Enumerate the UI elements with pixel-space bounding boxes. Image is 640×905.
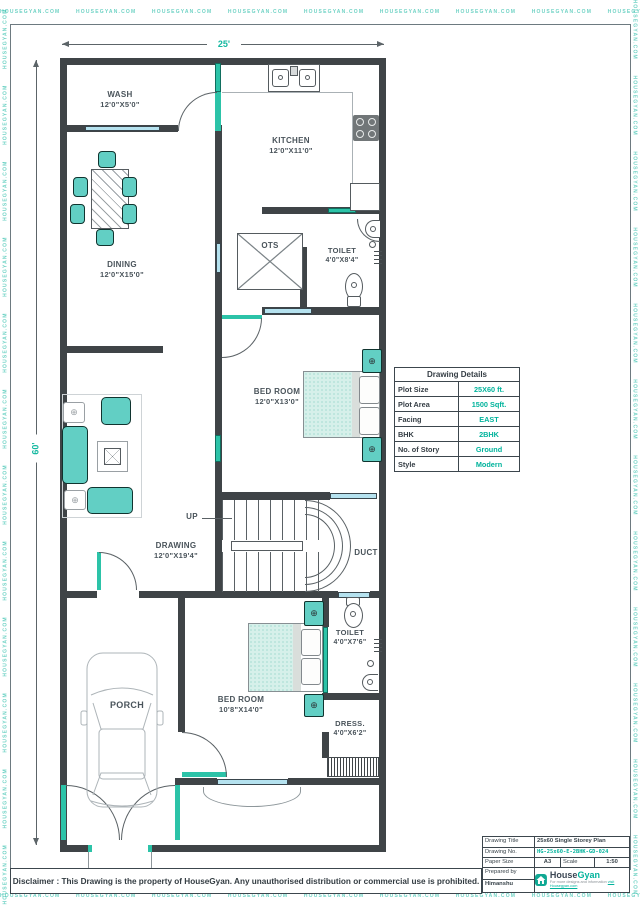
details-label: Plot Area [395,397,459,411]
dimension-arrow-down [33,838,39,845]
bed-2-blanket [249,624,295,691]
gate-stub-left [88,845,92,852]
up-direction-line [202,518,232,519]
room-size: 12'0"X15'0" [100,270,144,280]
floor-plan-sheet: HOUSEGYAN.COM HOUSEGYAN.COM HOUSEGYAN.CO… [0,0,640,905]
wall-corridor-vertical [215,125,222,598]
room-size: 4'0"X8'4" [326,256,359,265]
title-block-cell: Scale [561,858,595,868]
drawing-title-value: 25x60 Single Storey Plan [535,837,629,848]
nightstand-cross-icon: ⊕ [310,700,318,711]
dining-chair [73,177,88,197]
room-size: 10'8"X14'0" [218,705,264,715]
details-label: Plot Size [395,382,459,396]
stove-burner [368,118,376,126]
details-title: Drawing Details [395,368,519,382]
room-label-drawing: DRAWING 12'0"X19'4" [154,541,198,561]
bed-2 [248,623,323,692]
toilet2-basin-drain [367,679,373,685]
dimension-arrow-right [377,41,384,47]
room-label-toilet2: TOILET 4'0"X7'6" [334,628,367,647]
dining-chair [70,204,85,224]
details-label: Facing [395,412,459,426]
sofa-double [87,487,133,514]
room-label-porch: PORCH [110,700,144,712]
room-size: 12'0"X5'0" [100,100,140,110]
window-wash-kitchen [215,63,221,92]
details-row: Style Modern [395,457,519,471]
up-text: UP [186,512,198,521]
car-outline [80,645,164,817]
sink-drain-left [278,75,283,80]
wall-drawing-south-c [370,591,386,598]
room-label-dress: DRESS. 4'0"X6'2" [334,719,367,738]
wall-drawing-south-b [139,591,338,598]
bed-1-pillow [359,376,380,404]
prepared-by-value: Himanshu [483,880,535,892]
room-size: 4'0"X6'2" [334,729,367,738]
dining-chair [96,229,114,246]
room-label-bedroom1: BED ROOM 12'0"X13'0" [254,387,300,407]
room-label-wash: WASH 12'0"X5'0" [100,90,140,110]
title-block-cell: Drawing Title [483,837,535,848]
title-block-cell: Paper Size [483,858,535,868]
nightstand-cross-icon: ⊕ [310,608,318,619]
room-size: 12'0"X11'0" [269,146,313,156]
drawing-details-table: Drawing Details Plot Size 25X60 ft. Plot… [394,367,520,472]
window-corridor [216,243,221,273]
room-label-dining: DINING 12'0"X15'0" [100,260,144,280]
dining-chair [98,151,116,168]
dining-chair [122,204,137,224]
room-size: 12'0"X19'4" [154,551,198,561]
housegyan-logo-icon [535,873,547,887]
nightstand: ⊕ [362,349,382,373]
drawing-no-value: HG-25x60-E-2BHK-GD-024 [535,848,629,858]
window-wash [85,126,160,131]
wall-outer-top [60,58,386,65]
details-row: Plot Size 25X60 ft. [395,382,519,397]
details-row: BHK 2BHK [395,427,519,442]
title-block-cell: Drawing No. [483,848,535,858]
room-label-ots: OTS [258,241,281,251]
sofa-long [62,426,88,484]
label-duct: DUCT [354,548,377,558]
toilet2-wc-button [350,611,356,617]
sink-faucet [290,66,298,76]
stair-landing-rail [231,541,303,551]
room-size: 4'0"X7'6" [334,638,367,647]
disclaimer-bar: Disclaimer : This Drawing is the propert… [10,868,482,894]
wall-compound-left [60,845,88,852]
details-row: No. of Story Ground [395,442,519,457]
toilet2-floor-drain [367,660,374,667]
room-label-bedroom2: BED ROOM 10'8"X14'0" [218,695,264,715]
gate-leaf-right [175,785,180,840]
nightstand: ⊕ [304,601,324,626]
room-name: TOILET [336,628,364,637]
wall-porch-east [178,598,185,732]
counter-edge-top [222,92,352,93]
gate-stub-right [148,845,152,852]
stove [353,115,379,141]
room-name: OTS [261,241,278,250]
toilet1-wc-button [351,282,357,288]
wall-compound-right [152,845,386,852]
dimension-arrow-up [33,60,39,67]
bed-2-pillow [301,658,321,685]
room-name: TOILET [328,246,356,255]
window-drawing-bedroom1 [215,435,221,462]
disclaimer-text: Disclaimer : This Drawing is the propert… [13,877,479,886]
nightstand: ⊕ [304,694,324,717]
wall-dress-west [322,732,329,758]
title-block: Drawing Title 25x60 Single Storey Plan D… [482,836,630,893]
wall-bedroom1-south [222,492,330,500]
details-label: No. of Story [395,442,459,456]
logo-brand-primary: House [550,870,578,880]
wall-dining-south [60,346,163,353]
logo-brand-secondary: Gyan [577,870,600,880]
wall-front-a [60,778,66,785]
details-value: Modern [459,457,519,471]
room-name: DRAWING [156,541,197,550]
wall-drawing-south-a [60,591,97,598]
nightstand: ⊕ [362,437,382,462]
room-name: WASH [107,90,132,99]
side-table: ⊕ [63,402,85,423]
room-name: DINING [107,260,137,269]
prepared-by-label: Prepared by [483,868,535,880]
details-label: BHK [395,427,459,441]
room-name: BED ROOM [218,695,264,704]
details-row: Plot Area 1500 Sqft. [395,397,519,412]
window-ots-south [264,308,312,314]
stove-burner [368,130,376,138]
side-table-cross-icon: ⊕ [70,407,78,418]
toilet1-wc-tank [347,296,361,307]
side-table-cross-icon: ⊕ [71,495,79,506]
details-value: 2BHK [459,427,519,441]
bed-1-blanket [304,372,354,437]
sofa-single [101,397,131,425]
bed-2-fold [293,624,301,691]
side-table: ⊕ [64,490,86,510]
dimension-width-label: 25' [207,38,241,51]
window-bedroom1-south [330,493,377,499]
window-bedroom2-toilet2 [323,627,328,693]
stove-burner [356,130,364,138]
bed-1-pillow [359,407,380,435]
stove-burner [356,118,364,126]
window-front [217,779,288,785]
dining-chair [122,177,137,197]
nightstand-cross-icon: ⊕ [368,356,376,367]
details-value: Ground [459,442,519,456]
duct-text: DUCT [354,548,377,557]
nightstand-cross-icon: ⊕ [368,444,376,455]
room-label-kitchen: KITCHEN 12'0"X11'0" [269,136,313,156]
scale-value: 1:50 [595,858,629,868]
wall-front-c [288,778,386,785]
dimension-arrow-left [62,41,69,47]
details-row: Facing EAST [395,412,519,427]
room-size: 12'0"X13'0" [254,397,300,407]
label-up: UP [186,512,198,522]
room-label-toilet1: TOILET 4'0"X8'4" [326,246,359,265]
paper-size-value: A3 [535,858,561,868]
room-name: DRESS. [335,719,365,728]
room-name: BED ROOM [254,387,300,396]
refrigerator [350,183,380,211]
wall-toilet2-south [322,693,386,700]
room-name: KITCHEN [272,136,310,145]
bed-1 [303,371,380,438]
details-label: Style [395,457,459,471]
wall-front-b [175,778,217,785]
dimension-height-label: 60' [30,435,43,463]
details-value: EAST [459,412,519,426]
bed-2-pillow [301,629,321,656]
dress-wardrobe [327,757,379,777]
toilet1-basin-drain [370,226,376,232]
sink-drain-right [305,75,310,80]
details-value: 25X60 ft. [459,382,519,396]
toilet1-floor-drain [369,241,376,248]
watermark-top: HOUSEGYAN.COM HOUSEGYAN.COM HOUSEGYAN.CO… [0,9,640,20]
logo-cell: HouseGyan For more designs and informati… [535,868,629,892]
center-table-top [104,448,121,465]
details-value: 1500 Sqft. [459,397,519,411]
toilet1-towel-rail [374,251,382,264]
toilet2-towel-rail [374,639,382,652]
watermark-bottom: HOUSEGYAN.COM HOUSEGYAN.COM HOUSEGYAN.CO… [0,893,640,904]
room-name: PORCH [110,700,144,710]
